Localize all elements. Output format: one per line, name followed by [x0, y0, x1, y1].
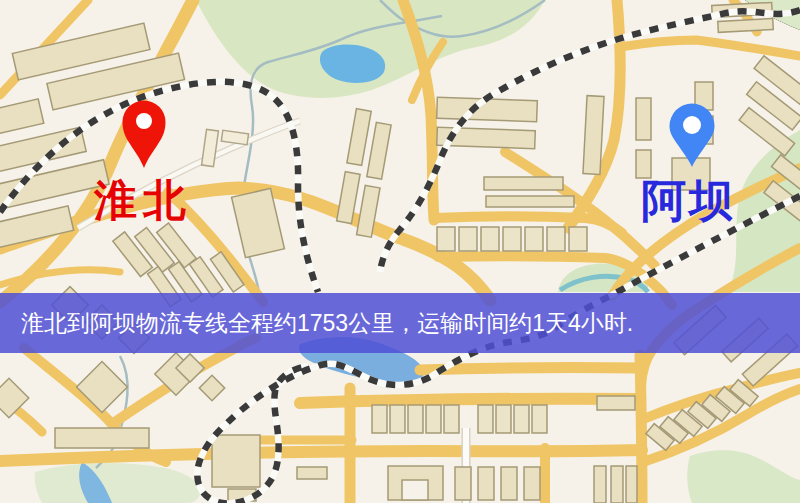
route-info-banner: 淮北到阿坝物流专线全程约1753公里，运输时间约1天4小时.	[0, 293, 800, 353]
origin-city-label: 淮北	[84, 179, 202, 222]
base-map	[0, 0, 800, 503]
route-info-text: 淮北到阿坝物流专线全程约1753公里，运输时间约1天4小时.	[0, 293, 800, 353]
map-canvas: 淮北 阿坝 淮北到阿坝物流专线全程约1753公里，运输时间约1天4小时.	[0, 0, 800, 503]
destination-city-label: 阿坝	[630, 178, 748, 223]
